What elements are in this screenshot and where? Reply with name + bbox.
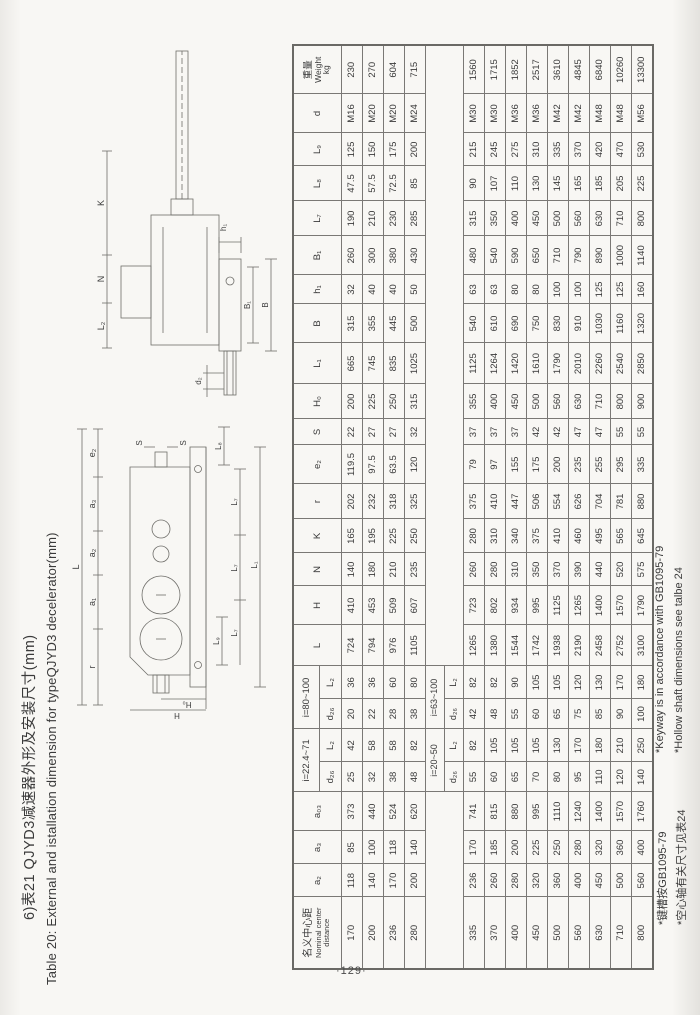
table-cell: 375 (527, 519, 548, 553)
header-S: S (293, 419, 342, 445)
table-cell: 315 (405, 384, 426, 419)
header-B: B (293, 304, 342, 343)
table-cell: 1025 (405, 343, 426, 384)
table-row: 5604002801240951707512021901265390460626… (569, 45, 590, 969)
table-cell: 976 (384, 625, 405, 666)
table-cell: 97 (485, 445, 506, 484)
table-cell: 82 (485, 666, 506, 699)
table-cell: 47.5 (342, 166, 363, 201)
table-cell: 575 (632, 553, 654, 586)
table-cell: 200 (548, 445, 569, 484)
table-cell: 100 (632, 699, 654, 729)
table-cell: 25 (342, 762, 363, 792)
table-cell: 607 (405, 586, 426, 625)
table-cell: 250 (405, 519, 426, 553)
table-cell: 310 (527, 133, 548, 166)
table-cell: 2010 (569, 343, 590, 384)
table-cell: 530 (632, 133, 654, 166)
table-cell: 400 (632, 831, 654, 864)
table-cell: 72.5 (384, 166, 405, 201)
table-cell: 105 (527, 729, 548, 762)
table-cell: 1264 (485, 343, 506, 384)
table-cell: 1420 (506, 343, 527, 384)
table-cell: 1380 (485, 625, 506, 666)
mid-subheader-d26: d₂₆ (445, 699, 464, 729)
table-cell: 125 (342, 133, 363, 166)
table-cell: 22 (342, 419, 363, 445)
table-body-mid: i=20~50 i=63~100 d₂₆ L₂ d₂₆ L₂ (426, 45, 464, 969)
table-cell: 410 (548, 519, 569, 553)
header-H0: H₀ (293, 384, 342, 419)
table-cell: 280 (485, 553, 506, 586)
table-cell: 20 (342, 699, 363, 729)
mid-subheader-d26: d₂₆ (445, 762, 464, 792)
table-cell: 100 (548, 275, 569, 304)
table-cell: 42 (464, 699, 485, 729)
table-cell: 310 (485, 519, 506, 553)
table-cell: 715 (405, 45, 426, 94)
table-cell: 13300 (632, 45, 654, 94)
table-cell: M30 (464, 94, 485, 133)
table-cell: 400 (506, 897, 527, 969)
table-cell: M24 (405, 94, 426, 133)
table-cell: 710 (611, 201, 632, 236)
table-cell: M56 (632, 94, 654, 133)
table-cell: 2540 (611, 343, 632, 384)
table-cell: 60 (384, 666, 405, 699)
header-nominal-center-distance: 名义中心距 Nominal center distance (293, 897, 342, 969)
table-cell: 500 (611, 864, 632, 897)
table-cell: 195 (363, 519, 384, 553)
table-cell: 80 (548, 762, 569, 792)
table-cell: 1265 (569, 586, 590, 625)
table-cell: 118 (342, 864, 363, 897)
header-a3: a₃ (293, 831, 342, 864)
table-cell: 295 (611, 445, 632, 484)
table-cell: 380 (384, 236, 405, 275)
header-K: K (293, 519, 342, 553)
header-group-i80: i=80~100 (293, 666, 320, 729)
table-cell: M20 (363, 94, 384, 133)
dim-label-K: K (96, 200, 106, 206)
table-cell: 130 (527, 166, 548, 201)
table-cell: 1140 (632, 236, 654, 275)
table-cell: 120 (611, 762, 632, 792)
table-cell: 65 (506, 762, 527, 792)
header-L8: L₈ (293, 166, 342, 201)
table-cell: 145 (548, 166, 569, 201)
table-cell: 60 (485, 762, 506, 792)
table-cell: 800 (611, 384, 632, 419)
table-cell: 565 (611, 519, 632, 553)
dim-label-B1: B₁ (243, 301, 252, 309)
table-cell: 815 (485, 792, 506, 831)
dim-label-e2: e₂ (87, 448, 97, 457)
table-cell: 230 (342, 45, 363, 94)
table-cell: 540 (485, 236, 506, 275)
table-cell: 110 (590, 762, 611, 792)
table-cell: 225 (363, 384, 384, 419)
side-view-diagram: L₂ N K d₂ h₁ B₁ B (95, 43, 285, 403)
table-cell: 110 (506, 166, 527, 201)
table-cell: 37 (464, 419, 485, 445)
table-cell: 202 (342, 484, 363, 519)
table-cell: 57.5 (363, 166, 384, 201)
dim-label-r: r (87, 666, 97, 669)
table-cell: 95 (569, 762, 590, 792)
table-row: 6304503201400110180851302458140044049570… (590, 45, 611, 969)
table-cell: 140 (363, 864, 384, 897)
table-cell: 235 (405, 553, 426, 586)
table-cell: 320 (527, 864, 548, 897)
table-cell: 107 (485, 166, 506, 201)
table-cell: 119.5 (342, 445, 363, 484)
table-cell: 995 (527, 586, 548, 625)
table-cell: 1852 (506, 45, 527, 94)
header-h1: h₁ (293, 275, 342, 304)
table-cell: 260 (485, 864, 506, 897)
table-cell: 560 (548, 384, 569, 419)
table-cell: 245 (485, 133, 506, 166)
table-cell: 185 (485, 831, 506, 864)
table-cell: 170 (569, 729, 590, 762)
table-cell: 260 (464, 553, 485, 586)
table-cell: 1265 (464, 625, 485, 666)
rotated-content: 6)表21 QJYD3减速器外形及安装尺寸(mm) Table 20: Exte… (0, 0, 700, 1015)
table-cell: M48 (611, 94, 632, 133)
table-row: 7105003601570120210901702752157052056578… (611, 45, 632, 969)
table-cell: 185 (590, 166, 611, 201)
table-cell: 1760 (632, 792, 654, 831)
table-cell: 1938 (548, 625, 569, 666)
dim-label-a2: a₂ (87, 548, 97, 557)
table-cell: 1110 (548, 792, 569, 831)
table-cell: 140 (342, 553, 363, 586)
table-cell: 540 (464, 304, 485, 343)
table-cell: 360 (548, 864, 569, 897)
table-row: 8005604001760140250100180310017905756458… (632, 45, 654, 969)
table-cell: 255 (590, 445, 611, 484)
table-cell: 232 (363, 484, 384, 519)
table-cell: 97.5 (363, 445, 384, 484)
table-cell: 335 (548, 133, 569, 166)
table-cell: 373 (342, 792, 363, 831)
table-cell: 1570 (611, 586, 632, 625)
table-cell: 42 (548, 419, 569, 445)
table-cell: 370 (569, 133, 590, 166)
dim-label-H: H (174, 711, 180, 720)
table-cell: 235 (569, 445, 590, 484)
header-weight: 重量 Weight kg (293, 45, 342, 94)
mid-group-i20: i=20~50 (426, 729, 445, 792)
table-cell: 170 (384, 864, 405, 897)
table-cell: 723 (464, 586, 485, 625)
header-a03: a₀₃ (293, 792, 342, 831)
table-cell: 360 (611, 831, 632, 864)
dim-label-N: N (96, 276, 106, 283)
table-cell: 55 (611, 419, 632, 445)
table-cell: 724 (342, 625, 363, 666)
table-cell: 1160 (611, 304, 632, 343)
table-cell: 934 (506, 586, 527, 625)
table-cell: 690 (506, 304, 527, 343)
table-cell: 390 (569, 553, 590, 586)
table-cell: 450 (506, 384, 527, 419)
dimension-table: 名义中心距 Nominal center distance a₂ a₃ a₀₃ … (292, 44, 654, 970)
table-cell: 2458 (590, 625, 611, 666)
table-cell: 42 (342, 729, 363, 762)
table-cell: 325 (405, 484, 426, 519)
mid-band-blank-right (426, 45, 464, 666)
table-cell: 1400 (590, 586, 611, 625)
table-cell: 781 (611, 484, 632, 519)
table-cell: M36 (506, 94, 527, 133)
table-cell: 55 (464, 762, 485, 792)
table-cell: 6840 (590, 45, 611, 94)
table-cell: 560 (632, 864, 654, 897)
table-cell: 50 (405, 275, 426, 304)
table-cell: 1105 (405, 625, 426, 666)
subheader-L2: L₂ (320, 729, 342, 762)
table-cell: 160 (632, 275, 654, 304)
table-cell: 1544 (506, 625, 527, 666)
table-row: 2802001406204882388011056072352503251203… (405, 45, 426, 969)
front-view-diagram: L r a₁ a₂ a₃ e₂ S S L₈ H₀ H L₉ L₇ L₇ L₇ … (72, 417, 287, 717)
subheader-L2: L₂ (320, 666, 342, 699)
table-cell: 2260 (590, 343, 611, 384)
table-cell: 140 (632, 762, 654, 792)
table-cell: 22 (363, 699, 384, 729)
table-cell: 1790 (548, 343, 569, 384)
table-cell: 155 (506, 445, 527, 484)
table-cell: 118 (384, 831, 405, 864)
header-H: H (293, 586, 342, 625)
dim-label-L9: L₉ (212, 637, 221, 645)
table-cell: 270 (363, 45, 384, 94)
table-row: 1701188537325422036724410140165202119.52… (342, 45, 363, 969)
table-cell: 880 (506, 792, 527, 831)
table-row: 4503202259957010560105174299535037550617… (527, 45, 548, 969)
table-cell: 350 (485, 201, 506, 236)
header-L7: L₇ (293, 201, 342, 236)
table-cell: M36 (527, 94, 548, 133)
table-cell: M16 (342, 94, 363, 133)
table-cell: 32 (405, 419, 426, 445)
table-cell: 453 (363, 586, 384, 625)
table-cell: 1570 (611, 792, 632, 831)
table-cell: 250 (632, 729, 654, 762)
table-cell: 32 (342, 275, 363, 304)
dim-label-L2: L₂ (96, 321, 106, 330)
dim-label-L1: L₁ (250, 561, 259, 568)
table-cell: 200 (363, 897, 384, 969)
table-cell: 250 (548, 831, 569, 864)
table-cell: 200 (342, 384, 363, 419)
footnote-line: *空心轴有关尺寸见表24 *Hollow shaft dimensions se… (673, 546, 689, 925)
table-row: 3352361707415582428212657232602803757937… (464, 45, 485, 969)
table-cell: 82 (405, 729, 426, 762)
table-cell: 275 (506, 133, 527, 166)
table-cell: 58 (384, 729, 405, 762)
table-cell: M30 (485, 94, 506, 133)
dim-label-L7c: L₇ (230, 498, 239, 505)
table-cell: 645 (632, 519, 654, 553)
table-cell: 105 (527, 666, 548, 699)
table-cell: 280 (569, 831, 590, 864)
table-cell: 3100 (632, 625, 654, 666)
table-cell: 280 (405, 897, 426, 969)
table-cell: 55 (632, 419, 654, 445)
table-cell: 2850 (632, 343, 654, 384)
table-cell: 100 (363, 831, 384, 864)
header-e2: e₂ (293, 445, 342, 484)
table-cell: 63 (485, 275, 506, 304)
table-cell: 750 (527, 304, 548, 343)
dim-label-a3: a₃ (87, 499, 97, 508)
table-cell: 450 (527, 897, 548, 969)
table-cell: 225 (527, 831, 548, 864)
table-cell: 125 (611, 275, 632, 304)
table-cell: 495 (590, 519, 611, 553)
table-cell: 450 (590, 864, 611, 897)
table-cell: 28 (384, 699, 405, 729)
table-cell: 236 (464, 864, 485, 897)
table-cell: 1240 (569, 792, 590, 831)
table-cell: 355 (464, 384, 485, 419)
table-cell: 85 (590, 699, 611, 729)
table-cell: 105 (506, 729, 527, 762)
page-title-zh: 6)表21 QJYD3减速器外形及安装尺寸(mm) (18, 634, 39, 920)
table-cell: 320 (590, 831, 611, 864)
table-cell: 370 (485, 897, 506, 969)
table-cell: 230 (384, 201, 405, 236)
table-cell: 335 (464, 897, 485, 969)
mid-subheader-L2: L₂ (445, 666, 464, 699)
dim-label-L7a: L₇ (230, 629, 239, 636)
table-cell: 1742 (527, 625, 548, 666)
table-cell: 105 (485, 729, 506, 762)
dim-label-h1: h₁ (219, 224, 228, 231)
table-cell: 210 (363, 201, 384, 236)
table-cell: 285 (405, 201, 426, 236)
table-cell: 1125 (464, 343, 485, 384)
table-cell: 125 (590, 275, 611, 304)
table-cell: 82 (464, 666, 485, 699)
table-cell: 38 (405, 699, 426, 729)
table-cell: 500 (548, 897, 569, 969)
table-cell: 800 (632, 897, 654, 969)
header-L9: L₉ (293, 133, 342, 166)
table-cell: 260 (342, 236, 363, 275)
table-cell: 524 (384, 792, 405, 831)
table-cell: 47 (569, 419, 590, 445)
table-cell: 48 (405, 762, 426, 792)
table-cell: 200 (405, 864, 426, 897)
table-cell: 170 (611, 666, 632, 699)
table-cell: 790 (569, 236, 590, 275)
table-cell: 447 (506, 484, 527, 519)
footnotes: *键槽按GB1095-79 *Keyway is in accordance w… (654, 546, 692, 925)
table-cell: 835 (384, 343, 405, 384)
table-cell: 200 (405, 133, 426, 166)
table-cell: 10260 (611, 45, 632, 94)
table-cell: 65 (548, 699, 569, 729)
table-cell: 205 (611, 166, 632, 201)
footnote-line: *键槽按GB1095-79 *Keyway is in accordance w… (654, 546, 670, 925)
table-cell: 665 (342, 343, 363, 384)
table-cell: 165 (569, 166, 590, 201)
table-cell: 32 (363, 762, 384, 792)
table-cell: M42 (569, 94, 590, 133)
table-cell: 604 (384, 45, 405, 94)
table-cell: 1030 (590, 304, 611, 343)
table-cell: 440 (363, 792, 384, 831)
table-cell: 445 (384, 304, 405, 343)
table-cell: 105 (548, 666, 569, 699)
table-cell: 480 (464, 236, 485, 275)
table-cell: 4845 (569, 45, 590, 94)
table-cell: 75 (569, 699, 590, 729)
dim-label-S1: S (135, 440, 144, 445)
table-cell: 1400 (590, 792, 611, 831)
table-cell: 63 (464, 275, 485, 304)
header-L1: L₁ (293, 343, 342, 384)
table-row: 4002802008806510555901544934310340447155… (506, 45, 527, 969)
dim-label-L8: L₈ (214, 442, 223, 450)
table-cell: 190 (342, 201, 363, 236)
table-cell: 85 (405, 166, 426, 201)
table-cell: 340 (506, 519, 527, 553)
table-cell: M20 (384, 94, 405, 133)
table-cell: 90 (464, 166, 485, 201)
table-cell: 180 (632, 666, 654, 699)
header-r: r (293, 484, 342, 519)
table-body-1: 1701188537325422036724410140165202119.52… (342, 45, 426, 969)
table-cell: 590 (506, 236, 527, 275)
table-row: 2361701185243858286097650921022531863.52… (384, 45, 405, 969)
header-a2: a₂ (293, 864, 342, 897)
table-cell: 318 (384, 484, 405, 519)
table-cell: 80 (405, 666, 426, 699)
table-cell: 37 (506, 419, 527, 445)
table-cell: 82 (464, 729, 485, 762)
table-cell: 626 (569, 484, 590, 519)
table-cell: 710 (611, 897, 632, 969)
table-cell: 741 (464, 792, 485, 831)
subheader-d26: d₂₆ (320, 699, 342, 729)
table-cell: 38 (384, 762, 405, 792)
dim-label-B: B (261, 302, 270, 307)
table-cell: 70 (527, 762, 548, 792)
table-cell: 100 (569, 275, 590, 304)
table-cell: 120 (405, 445, 426, 484)
mid-subheader-L2: L₂ (445, 729, 464, 762)
table-cell: 650 (527, 236, 548, 275)
table-cell: 610 (485, 304, 506, 343)
table-cell: 120 (569, 666, 590, 699)
table-cell: 130 (548, 729, 569, 762)
table-cell: 280 (506, 864, 527, 897)
table-cell: 27 (363, 419, 384, 445)
table-cell: 315 (464, 201, 485, 236)
table-cell: 60 (527, 699, 548, 729)
table-cell: 500 (548, 201, 569, 236)
table-cell: 630 (590, 201, 611, 236)
header-d: d (293, 94, 342, 133)
table-cell: 500 (527, 384, 548, 419)
table-cell: 1125 (548, 586, 569, 625)
table-cell: 554 (548, 484, 569, 519)
